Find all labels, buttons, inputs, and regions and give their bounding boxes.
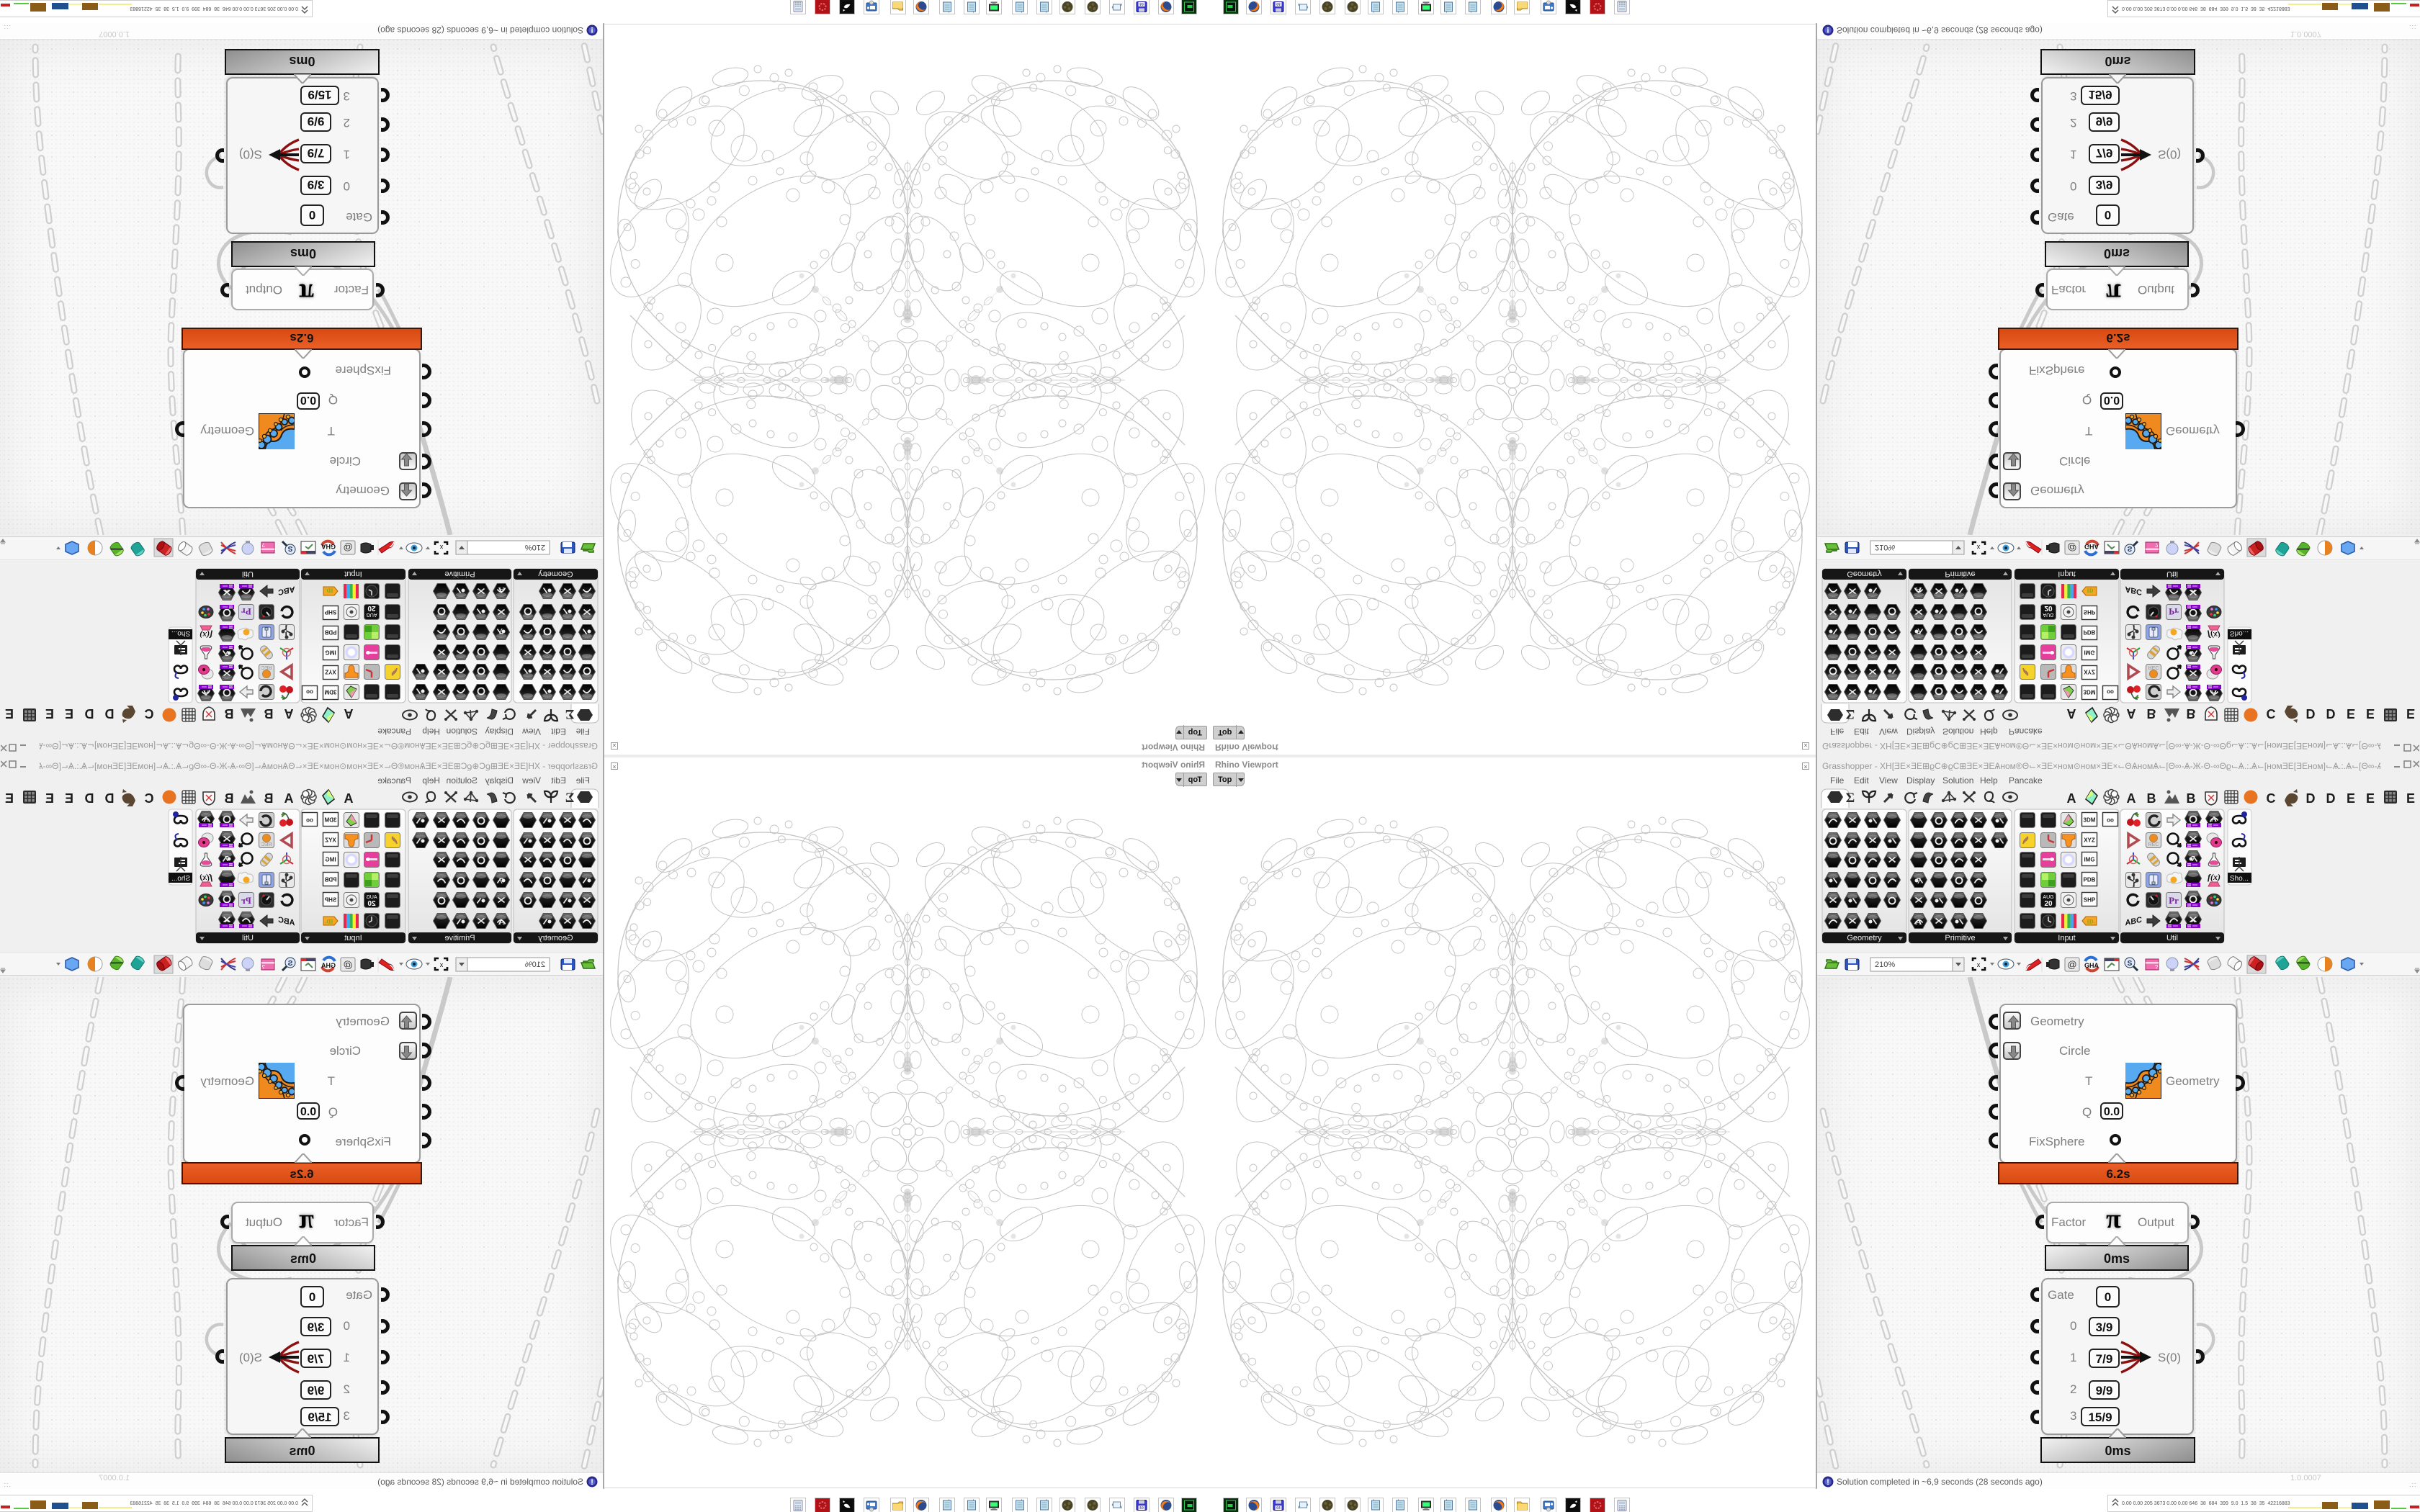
svg-text:S: S xyxy=(2128,544,2133,552)
svg-text:E: E xyxy=(2347,706,2355,721)
svg-text:f(x): f(x) xyxy=(200,630,212,640)
svg-text:A: A xyxy=(1916,585,1922,595)
svg-text:XYZ: XYZ xyxy=(325,669,336,675)
svg-text:REC: REC xyxy=(261,665,272,670)
svg-text:REC: REC xyxy=(261,842,272,847)
svg-text:Util: Util xyxy=(242,570,254,578)
svg-text:A: A xyxy=(2067,791,2076,806)
svg-text:SHP: SHP xyxy=(324,609,336,616)
svg-text:C: C xyxy=(145,706,154,721)
svg-text:D: D xyxy=(2326,791,2336,806)
svg-text:SHP: SHP xyxy=(2084,897,2096,904)
svg-text:!: ! xyxy=(1827,1478,1829,1487)
svg-text:7: 7 xyxy=(225,649,229,657)
svg-text:Sho...: Sho... xyxy=(2230,875,2249,883)
svg-text:AUG: AUG xyxy=(366,895,377,900)
svg-text:Σ: Σ xyxy=(1846,706,1855,721)
svg-text:64: 64 xyxy=(1139,1,1144,6)
svg-text:Primitive: Primitive xyxy=(1945,934,1975,942)
svg-text:S: S xyxy=(2128,960,2133,968)
svg-text:B: B xyxy=(264,706,274,721)
svg-text:XYZ: XYZ xyxy=(325,837,336,844)
svg-text:x: x xyxy=(1977,961,1981,968)
svg-text:Util: Util xyxy=(2166,570,2178,578)
svg-text:A: A xyxy=(498,585,504,595)
svg-text:?: ? xyxy=(2155,541,2159,548)
svg-text:REC: REC xyxy=(2148,665,2159,670)
svg-text:64: 64 xyxy=(1276,1,1281,6)
svg-text:!: ! xyxy=(591,1478,593,1487)
svg-text:x: x xyxy=(2191,916,2196,924)
svg-text:?: ? xyxy=(2155,964,2159,971)
svg-text:AUG: AUG xyxy=(366,612,377,617)
svg-text:E: E xyxy=(2406,706,2415,721)
svg-text:3DM: 3DM xyxy=(324,689,336,696)
svg-text:oo: oo xyxy=(2107,817,2114,824)
svg-text:PDB: PDB xyxy=(2084,877,2096,883)
svg-text:IMG: IMG xyxy=(2084,857,2094,863)
svg-text:x: x xyxy=(224,588,229,596)
svg-text:3DM: 3DM xyxy=(2084,689,2096,696)
svg-text:Primitive: Primitive xyxy=(444,934,475,942)
svg-text:f(x): f(x) xyxy=(2208,630,2220,640)
svg-text:Sho...: Sho... xyxy=(171,629,190,637)
svg-text:REC: REC xyxy=(2148,842,2159,847)
svg-text:x: x xyxy=(224,916,229,924)
svg-text:D: D xyxy=(105,791,115,806)
svg-text:210%: 210% xyxy=(1875,543,1895,552)
svg-text:A: A xyxy=(284,706,294,721)
svg-text:B: B xyxy=(2147,791,2156,806)
svg-text:210%: 210% xyxy=(1875,960,1895,969)
svg-text:A: A xyxy=(498,917,504,927)
svg-text:f(x): f(x) xyxy=(2208,872,2220,882)
svg-text:IMG: IMG xyxy=(325,649,336,656)
svg-text:Util: Util xyxy=(242,934,254,942)
svg-text:Input: Input xyxy=(2058,934,2075,942)
svg-text:7: 7 xyxy=(1917,876,1921,886)
svg-text:20: 20 xyxy=(2044,900,2053,908)
svg-text:3DM: 3DM xyxy=(324,817,336,824)
svg-text:A: A xyxy=(203,815,209,824)
svg-text:Pr: Pr xyxy=(241,606,251,617)
svg-text:PDB: PDB xyxy=(324,877,336,883)
svg-text:x: x xyxy=(1977,544,1981,551)
svg-text:B: B xyxy=(264,791,274,806)
svg-text:XYZ: XYZ xyxy=(2084,669,2095,675)
svg-text:Geometry: Geometry xyxy=(1847,934,1882,942)
svg-text:64: 64 xyxy=(1276,1506,1281,1511)
svg-text:ID.: ID. xyxy=(2087,919,2095,925)
svg-text:7: 7 xyxy=(1917,626,1921,636)
svg-text:?: ? xyxy=(261,541,265,548)
svg-text:D: D xyxy=(105,706,115,721)
svg-text:D: D xyxy=(85,791,94,806)
svg-text:210%: 210% xyxy=(525,543,545,552)
svg-text:IMG: IMG xyxy=(2084,649,2094,656)
svg-text:Primitive: Primitive xyxy=(1945,570,1975,578)
svg-text:Input: Input xyxy=(344,934,362,942)
svg-text:B: B xyxy=(2187,791,2196,806)
svg-text:20: 20 xyxy=(367,604,376,612)
svg-text:7: 7 xyxy=(2191,855,2195,863)
svg-text:E: E xyxy=(45,791,54,806)
svg-text:Sho...: Sho... xyxy=(171,875,190,883)
svg-text:ID.: ID. xyxy=(326,919,333,925)
svg-text:Geometry: Geometry xyxy=(538,934,573,942)
svg-text:E: E xyxy=(2406,791,2415,806)
svg-text:B: B xyxy=(225,706,234,721)
svg-text:oo: oo xyxy=(306,817,313,824)
svg-text:E: E xyxy=(45,706,54,721)
svg-text:C: C xyxy=(2267,791,2276,806)
svg-text:oo: oo xyxy=(2107,689,2114,696)
svg-text:C: C xyxy=(2267,706,2276,721)
svg-text:20: 20 xyxy=(367,900,376,908)
svg-text:GHA: GHA xyxy=(2084,543,2099,550)
svg-text:SHP: SHP xyxy=(324,897,336,904)
svg-text:AUG: AUG xyxy=(2043,612,2053,617)
svg-text:oo: oo xyxy=(306,689,313,696)
svg-text:Geometry: Geometry xyxy=(538,570,573,578)
svg-text:Sho...: Sho... xyxy=(2230,629,2249,637)
svg-text:PDB: PDB xyxy=(324,629,336,636)
svg-text:7: 7 xyxy=(2191,649,2195,657)
svg-text:B: B xyxy=(2187,706,2196,721)
svg-text:A: A xyxy=(203,688,209,697)
svg-text:x: x xyxy=(439,544,443,551)
svg-text:3DM: 3DM xyxy=(2084,817,2096,824)
svg-text:Pr: Pr xyxy=(241,895,251,906)
svg-text:Input: Input xyxy=(344,570,362,578)
svg-text:@: @ xyxy=(343,959,352,970)
svg-text:D: D xyxy=(2306,791,2316,806)
svg-text:Pr: Pr xyxy=(2169,606,2179,617)
svg-text:S: S xyxy=(287,544,292,552)
svg-text:D: D xyxy=(2326,706,2336,721)
svg-text:Σ: Σ xyxy=(1846,791,1855,806)
svg-text:D: D xyxy=(2306,706,2316,721)
svg-text:E: E xyxy=(65,706,73,721)
svg-text:Util: Util xyxy=(2166,934,2178,942)
svg-text:A: A xyxy=(344,706,354,721)
svg-text:GHA: GHA xyxy=(2084,962,2099,969)
svg-text:PDB: PDB xyxy=(2084,629,2096,636)
svg-text:x: x xyxy=(2191,588,2196,596)
svg-text:Σ: Σ xyxy=(565,706,574,721)
svg-text:XYZ: XYZ xyxy=(2084,837,2095,844)
svg-text:GHA: GHA xyxy=(321,962,336,969)
svg-text:@: @ xyxy=(2067,959,2076,970)
svg-text:D: D xyxy=(85,706,94,721)
svg-text:S: S xyxy=(287,960,292,968)
svg-text:Geometry: Geometry xyxy=(1847,570,1882,578)
svg-text:B: B xyxy=(225,791,234,806)
svg-text:E: E xyxy=(2347,791,2355,806)
svg-text:A: A xyxy=(2127,791,2136,806)
svg-text:ID.: ID. xyxy=(2087,588,2095,594)
svg-text:SHP: SHP xyxy=(2084,609,2096,616)
svg-text:ID.: ID. xyxy=(326,588,333,594)
svg-text:64: 64 xyxy=(1139,1506,1144,1511)
svg-text:A: A xyxy=(284,791,294,806)
svg-text:A: A xyxy=(2127,706,2136,721)
svg-text:7: 7 xyxy=(225,855,229,863)
svg-text:E: E xyxy=(2366,791,2375,806)
svg-text:E: E xyxy=(5,706,14,721)
svg-text:f(x): f(x) xyxy=(200,872,212,882)
svg-text:@: @ xyxy=(2067,542,2076,553)
svg-text:A: A xyxy=(1916,917,1922,927)
svg-text:210%: 210% xyxy=(525,960,545,969)
svg-text:Pr: Pr xyxy=(2169,895,2179,906)
svg-text:!: ! xyxy=(591,25,593,34)
svg-text:!: ! xyxy=(1827,25,1829,34)
svg-text:7: 7 xyxy=(499,876,503,886)
svg-text:E: E xyxy=(65,791,73,806)
svg-text:C: C xyxy=(145,791,154,806)
svg-text:A: A xyxy=(344,791,354,806)
svg-text:E: E xyxy=(5,791,14,806)
svg-text:x: x xyxy=(439,961,443,968)
svg-text:A: A xyxy=(2211,688,2217,697)
svg-text:?: ? xyxy=(261,964,265,971)
svg-text:20: 20 xyxy=(2044,604,2053,612)
svg-text:7: 7 xyxy=(499,626,503,636)
svg-text:IMG: IMG xyxy=(325,857,336,863)
svg-text:Primitive: Primitive xyxy=(444,570,475,578)
svg-text:A: A xyxy=(2067,706,2076,721)
svg-text:B: B xyxy=(2147,706,2156,721)
svg-text:@: @ xyxy=(343,542,352,553)
svg-text:Σ: Σ xyxy=(565,791,574,806)
svg-text:A: A xyxy=(2211,815,2217,824)
svg-text:AUG: AUG xyxy=(2043,895,2053,900)
svg-text:GHA: GHA xyxy=(321,543,336,550)
svg-text:Input: Input xyxy=(2058,570,2075,578)
svg-text:E: E xyxy=(2366,706,2375,721)
